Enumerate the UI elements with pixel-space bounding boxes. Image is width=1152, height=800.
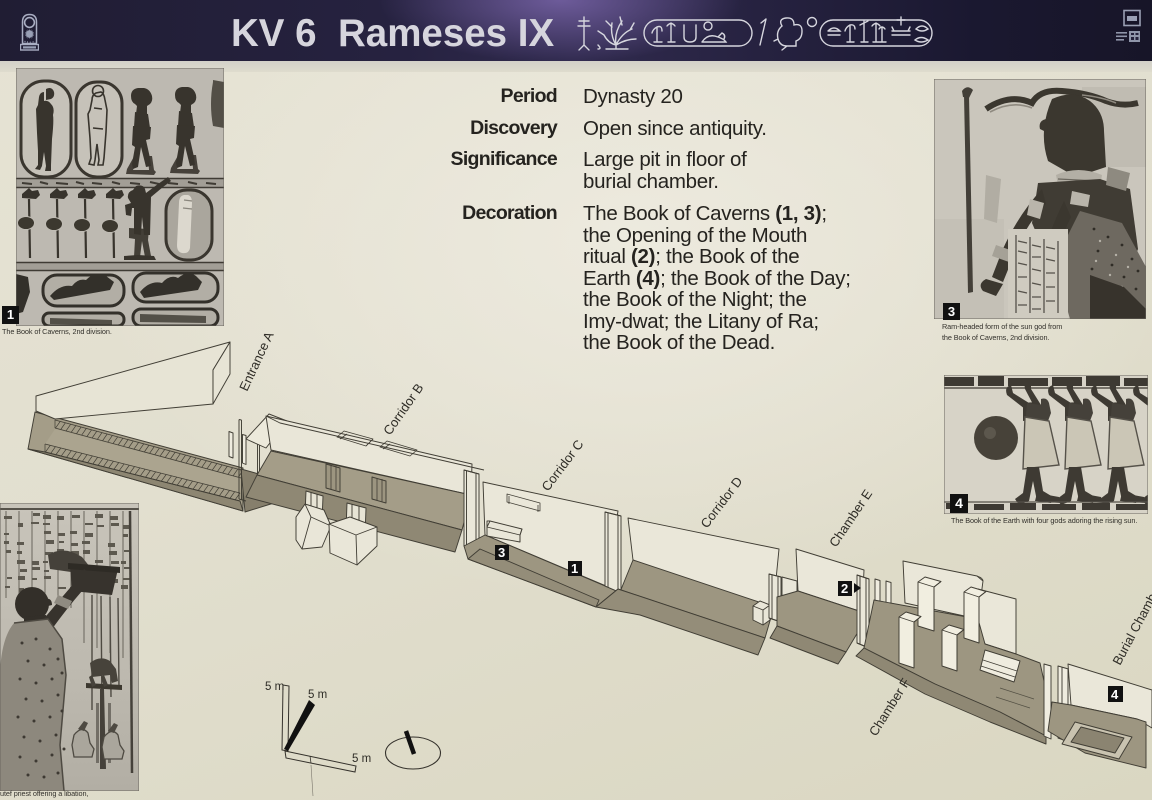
svg-text:5 m: 5 m <box>308 689 327 701</box>
svg-text:Corridor B: Corridor B <box>380 381 426 438</box>
svg-text:2: 2 <box>841 581 848 596</box>
svg-text:Burial Chamber J: Burial Chamber J <box>1109 572 1152 668</box>
svg-text:5 m: 5 m <box>352 753 371 765</box>
svg-text:Corridor D: Corridor D <box>697 474 745 531</box>
svg-text:4: 4 <box>1111 687 1119 702</box>
svg-text:Entrance A: Entrance A <box>236 329 277 393</box>
svg-text:3: 3 <box>498 545 505 560</box>
svg-text:Corridor C: Corridor C <box>538 437 586 494</box>
svg-text:5 m: 5 m <box>265 681 284 693</box>
svg-text:Chamber F: Chamber F <box>866 675 913 738</box>
svg-text:Chamber E: Chamber E <box>826 487 875 550</box>
svg-text:1: 1 <box>571 561 578 576</box>
